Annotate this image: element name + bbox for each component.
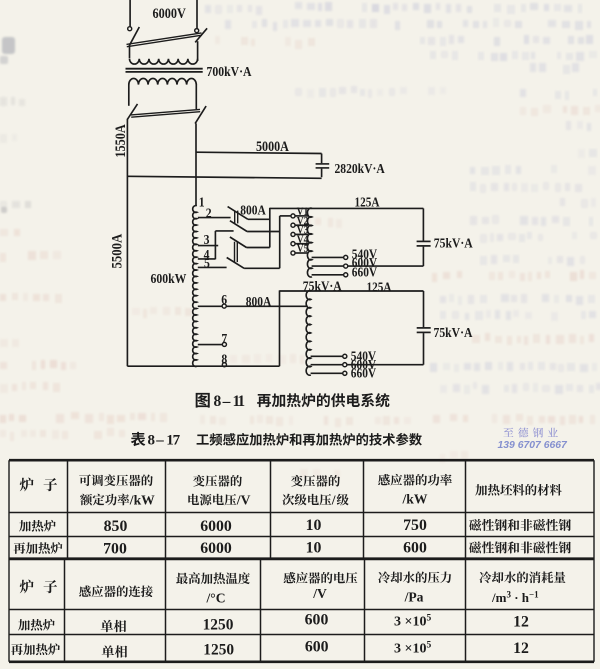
svg-text:75kV·A: 75kV·A [434, 325, 474, 340]
svg-text:600kW: 600kW [151, 270, 187, 286]
svg-text:800A: 800A [240, 203, 266, 218]
svg-text:12: 12 [513, 614, 529, 631]
svg-text:7: 7 [221, 331, 227, 346]
svg-text:2820kV·A: 2820kV·A [335, 161, 386, 176]
svg-text:1250: 1250 [203, 617, 234, 634]
svg-text:3 ×105: 3 ×105 [394, 614, 431, 630]
svg-text:600: 600 [305, 639, 329, 656]
svg-text:5: 5 [204, 256, 210, 271]
svg-text:125A: 125A [355, 194, 380, 209]
svg-text:/: / [331, 492, 336, 507]
svg-text:1550A: 1550A [112, 124, 128, 158]
svg-text:8: 8 [148, 433, 156, 449]
svg-text:17: 17 [166, 433, 180, 449]
svg-text:700: 700 [103, 540, 127, 557]
svg-text:1250: 1250 [203, 642, 234, 659]
svg-text:5500A: 5500A [109, 233, 126, 269]
svg-text:V5: V5 [297, 244, 309, 256]
svg-text:/m3 · h−1: /m3 · h−1 [491, 590, 539, 606]
svg-text:8: 8 [214, 393, 222, 410]
svg-text:6000: 6000 [200, 540, 232, 557]
svg-text:6000V: 6000V [153, 5, 187, 21]
svg-text:2: 2 [206, 206, 212, 221]
svg-text:6: 6 [221, 292, 227, 307]
svg-text:5000A: 5000A [256, 138, 289, 154]
svg-text:600: 600 [305, 612, 329, 629]
svg-text:3 ×105: 3 ×105 [394, 641, 431, 657]
svg-text:700kV·A: 700kV·A [207, 63, 253, 79]
svg-text:/V: /V [236, 492, 251, 507]
svg-text:660V: 660V [351, 366, 376, 381]
svg-text:–: – [222, 393, 231, 410]
svg-text:10: 10 [306, 539, 322, 556]
svg-text:11: 11 [233, 393, 245, 410]
svg-text:8: 8 [221, 352, 227, 367]
svg-text:10: 10 [306, 517, 322, 534]
svg-text:800A: 800A [246, 294, 272, 309]
svg-text:6000: 6000 [200, 518, 232, 535]
svg-text:/°C: /°C [205, 590, 225, 605]
svg-text:850: 850 [104, 518, 128, 535]
svg-text:1: 1 [199, 195, 205, 210]
svg-text:600: 600 [403, 539, 427, 556]
svg-text:/Pa: /Pa [404, 589, 424, 604]
svg-text:750: 750 [403, 517, 427, 534]
svg-text:3: 3 [204, 232, 210, 247]
svg-text:12: 12 [513, 640, 529, 657]
svg-text:–: – [155, 433, 164, 449]
svg-text:75kV·A: 75kV·A [434, 236, 474, 251]
svg-text:125A: 125A [367, 280, 392, 295]
svg-text:/V: /V [312, 586, 327, 601]
svg-text:/kW: /kW [402, 491, 428, 506]
svg-text:/kW: /kW [129, 492, 155, 507]
svg-text:139 6707 6667: 139 6707 6667 [498, 440, 569, 451]
